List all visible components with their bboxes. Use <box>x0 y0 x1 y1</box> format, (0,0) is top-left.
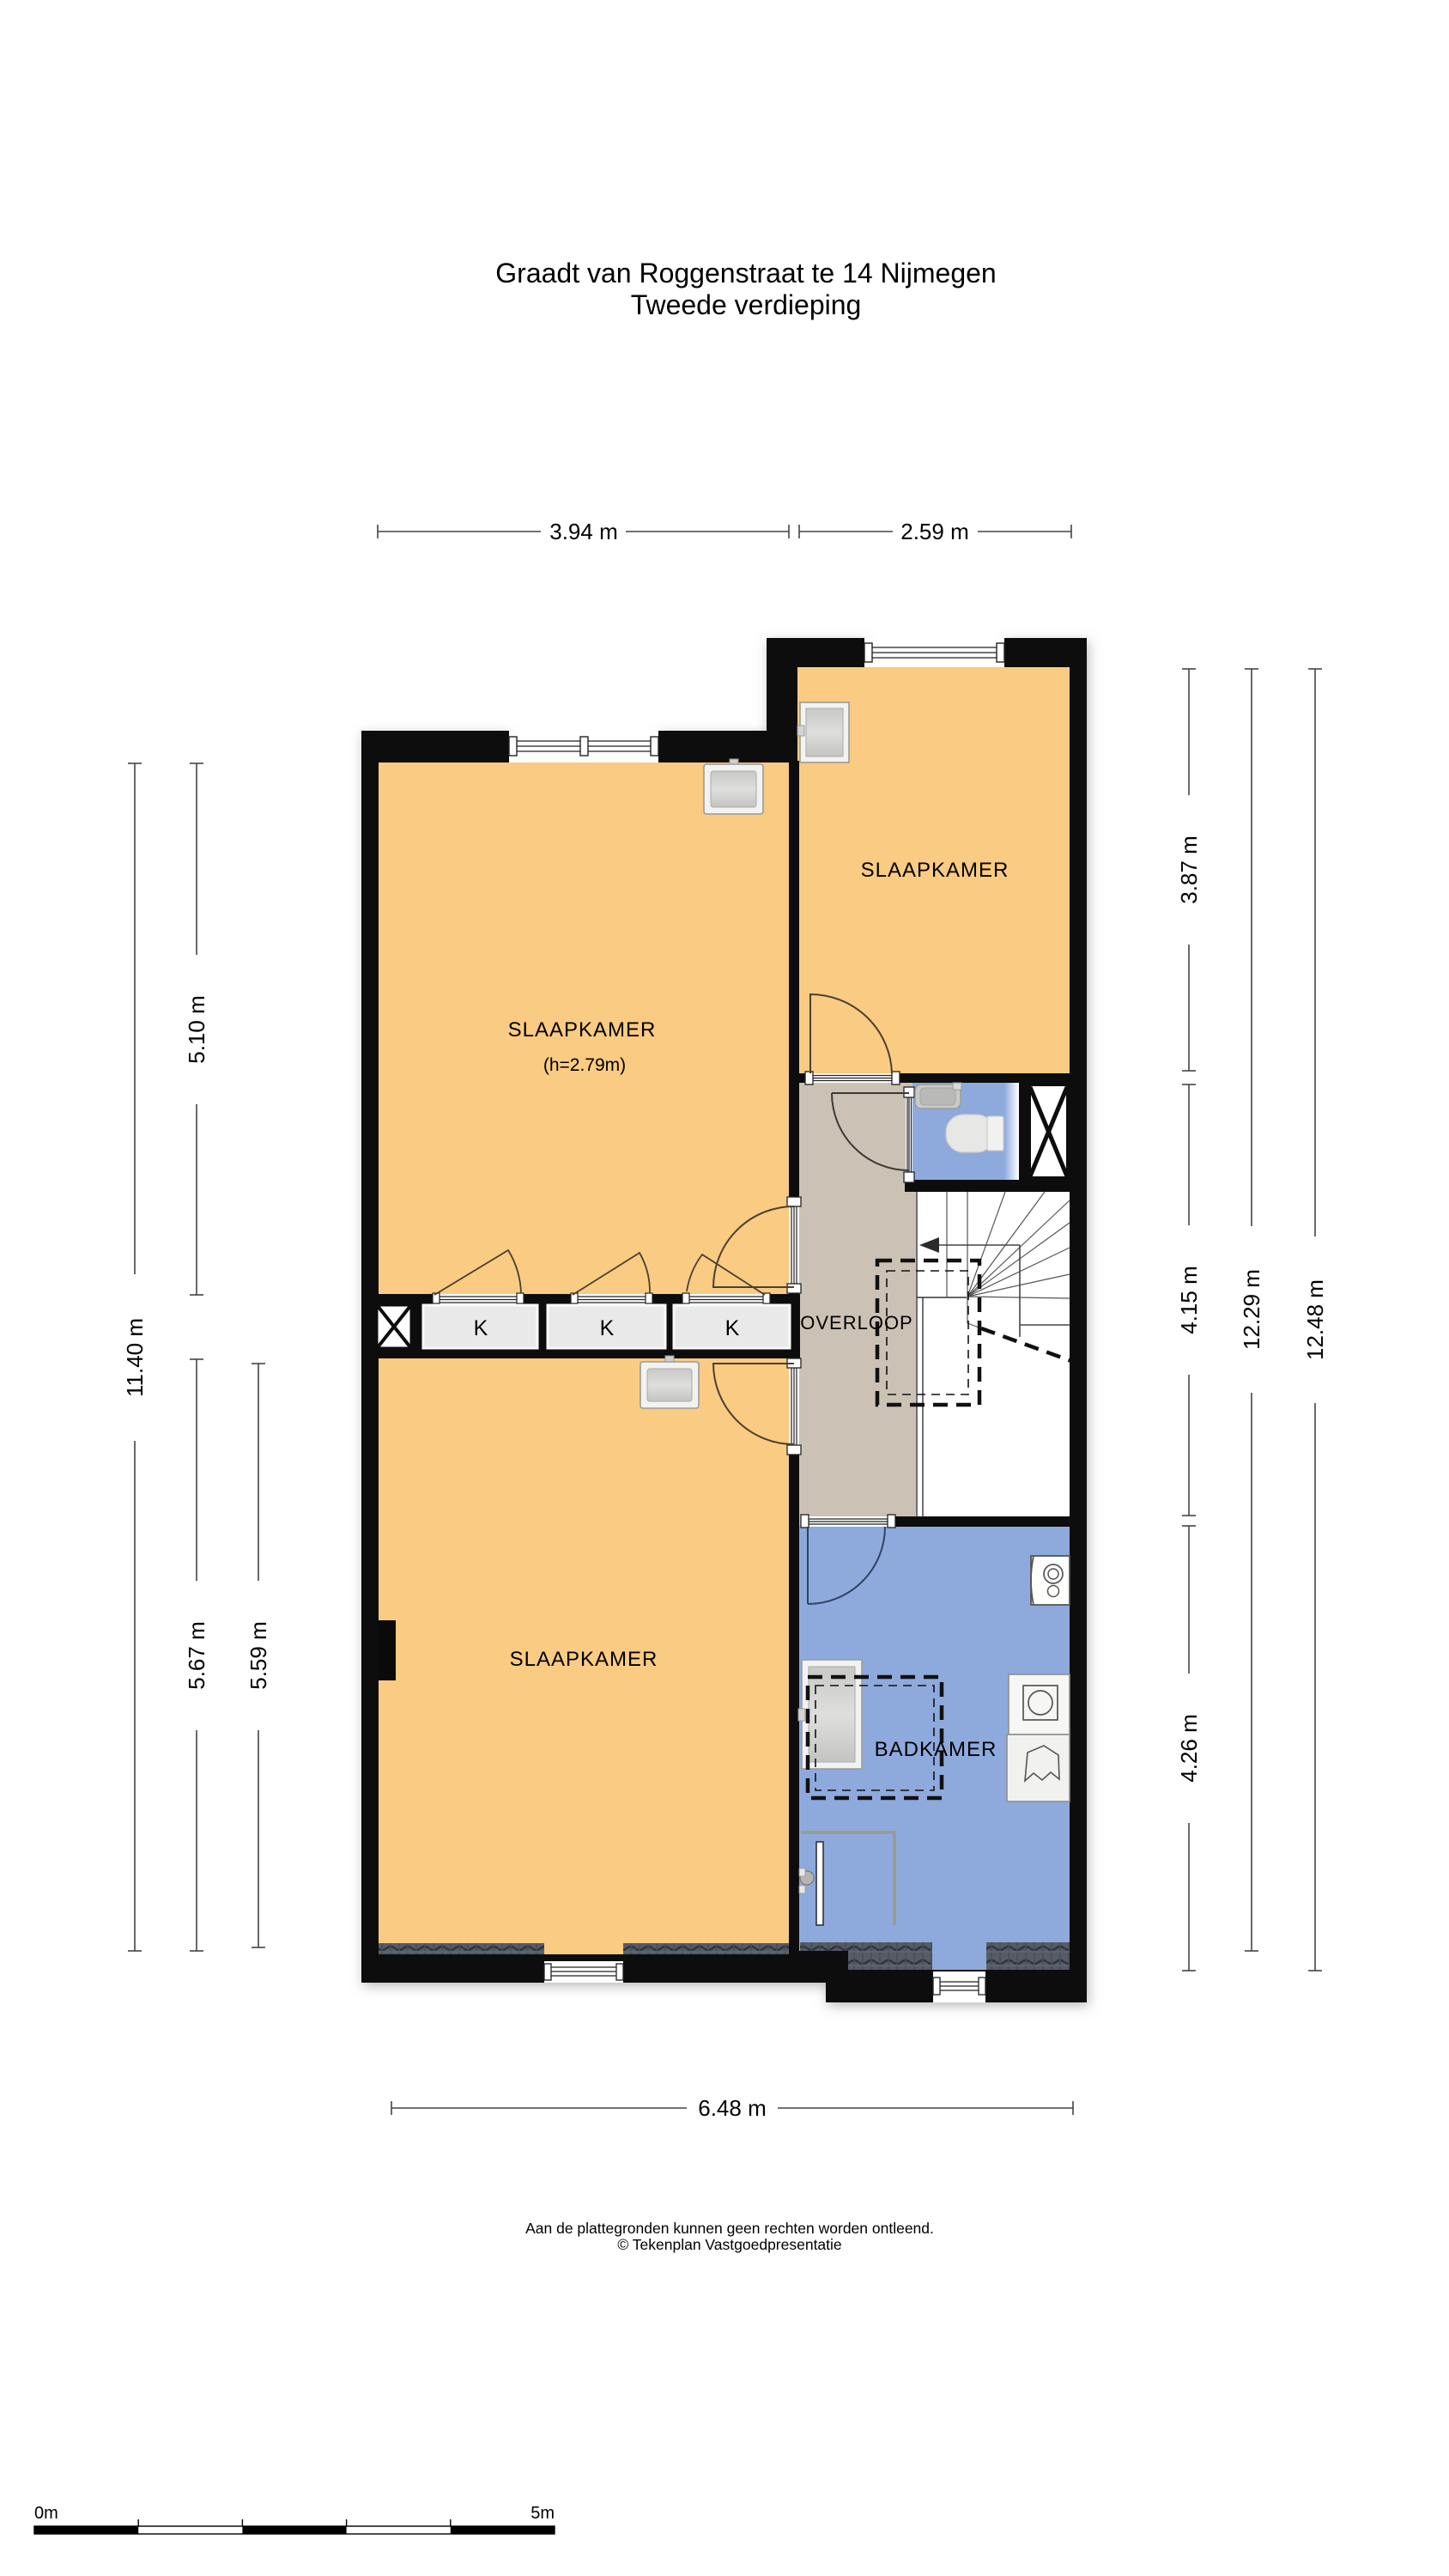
svg-text:OVERLOOP: OVERLOOP <box>800 1312 912 1334</box>
svg-text:2.59 m: 2.59 m <box>900 519 969 544</box>
svg-text:6.48 m: 6.48 m <box>698 2095 767 2121</box>
svg-text:4.15 m: 4.15 m <box>1176 1266 1202 1334</box>
svg-text:5m: 5m <box>530 2504 555 2523</box>
svg-text:K: K <box>474 1316 488 1340</box>
svg-text:Tweede verdieping: Tweede verdieping <box>631 289 862 320</box>
svg-text:12.29 m: 12.29 m <box>1239 1269 1264 1350</box>
svg-text:Graadt van Roggenstraat te 14: Graadt van Roggenstraat te 14 Nijmegen <box>495 258 996 289</box>
svg-text:K: K <box>725 1316 740 1340</box>
svg-text:K: K <box>600 1316 615 1340</box>
svg-text:4.26 m: 4.26 m <box>1176 1714 1202 1783</box>
svg-text:SLAAPKAMER: SLAAPKAMER <box>861 859 1009 882</box>
svg-text:5.67 m: 5.67 m <box>184 1621 209 1690</box>
svg-text:SLAAPKAMER: SLAAPKAMER <box>510 1648 658 1671</box>
svg-text:11.40 m: 11.40 m <box>122 1318 148 1397</box>
svg-text:12.48 m: 12.48 m <box>1302 1279 1328 1360</box>
svg-text:3.87 m: 3.87 m <box>1176 835 1202 904</box>
svg-text:(h=2.79m): (h=2.79m) <box>543 1055 626 1075</box>
svg-text:5.59 m: 5.59 m <box>246 1621 271 1690</box>
svg-text:0m: 0m <box>34 2504 58 2523</box>
svg-text:SLAAPKAMER: SLAAPKAMER <box>508 1018 657 1042</box>
svg-text:5.10 m: 5.10 m <box>184 995 209 1064</box>
svg-text:© Tekenplan Vastgoedpresentati: © Tekenplan Vastgoedpresentatie <box>617 2236 841 2253</box>
svg-text:3.94 m: 3.94 m <box>549 519 618 544</box>
svg-text:BADKAMER: BADKAMER <box>875 1738 997 1761</box>
svg-text:Aan de plattegronden kunnen ge: Aan de plattegronden kunnen geen rechten… <box>525 2220 934 2237</box>
